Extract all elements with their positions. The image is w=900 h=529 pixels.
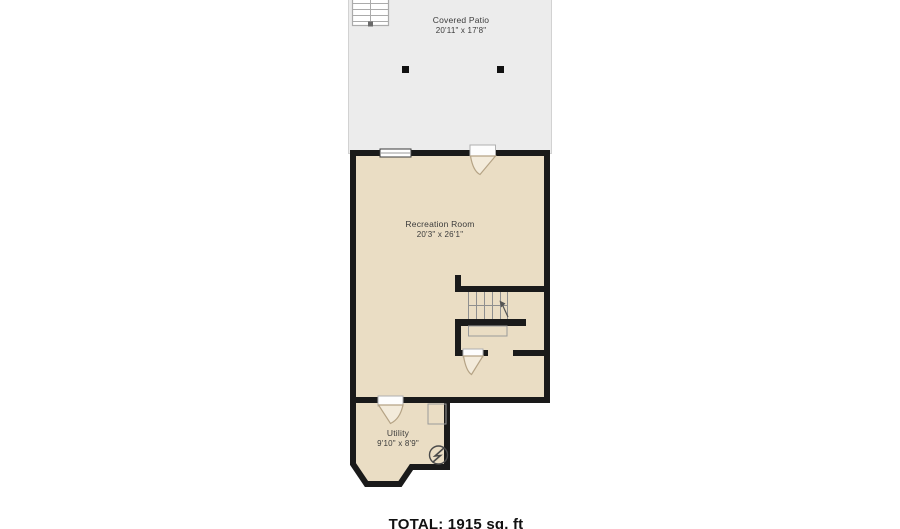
floorplan-drawing [0,0,900,529]
patio-post-left [402,66,409,73]
floorplan-page: Covered Patio 20'11" x 17'8" Recreation … [0,0,900,529]
recreation-room-area [353,145,547,400]
total-area-label: TOTAL: 1915 sq. ft [389,516,524,529]
patio-post-right [497,66,504,73]
covered-patio-area [349,0,552,154]
exterior-stairs-icon [353,0,389,27]
window [380,149,411,157]
